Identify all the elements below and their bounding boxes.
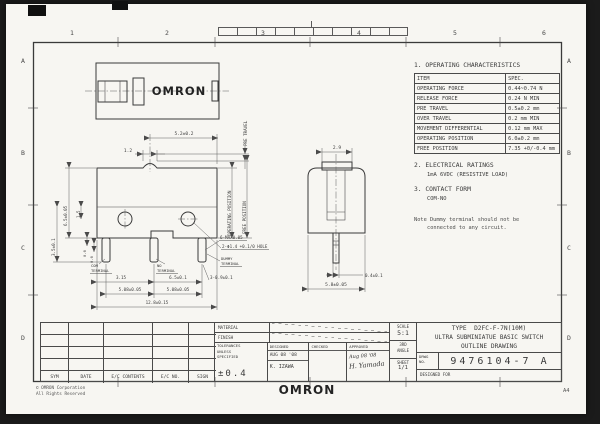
finish-row: FINISH <box>215 333 389 343</box>
approved-signature: H. Yamada <box>347 357 390 373</box>
zone-row-d-right: D <box>567 334 571 342</box>
ruler-center-tick <box>311 21 312 27</box>
zone-row-a-right: A <box>567 57 571 65</box>
zone-col-1: 1 <box>70 29 74 37</box>
dim-terminal-width: 3-0.9±0.1 <box>210 275 233 280</box>
binder-mark <box>28 5 46 16</box>
drawing-number: 9476104-7 A <box>439 353 561 369</box>
note-burr: 6-MAX0.05 <box>220 235 243 240</box>
dim-overall-width: 12.8±0.15 <box>146 300 169 305</box>
table-header-row: ITEM SPEC. <box>415 74 559 84</box>
zone-row-d-left: D <box>21 334 25 342</box>
zone-row-b-left: B <box>21 149 25 157</box>
designed-for-label: DESIGNED FOR <box>417 370 561 379</box>
finish-blank-slash <box>270 333 389 342</box>
subtitle-line: ULTRA SUBMINIATUE BASIC SWITCH <box>417 334 561 343</box>
side-view <box>308 154 365 270</box>
rev-header-ecno: E/C NO. <box>153 371 189 383</box>
electrical-ratings-value: 1mA 6VDC (RESISTIVE LOAD) <box>414 172 564 178</box>
table-row: MOVEMENT DIFFERENTIAL 0.12 mm MAX <box>415 124 559 134</box>
table-row: FREE POSITION 7.35 +0/-0.4 mm <box>415 144 559 153</box>
dim-side-button: 2.9 <box>333 145 341 151</box>
scale-cell: SCALE 5:1 <box>390 323 416 341</box>
note-hole: 2-Φ1.4 +0.1/0 HOLE <box>222 244 268 249</box>
zone-row-a-left: A <box>21 57 25 65</box>
omron-logo-footer: OMRON <box>252 383 362 397</box>
svg-text:TERMINAL: TERMINAL <box>221 261 240 266</box>
dummy-terminal-note: Note Dummy terminal should not be connec… <box>414 217 564 233</box>
dim-terminal-offset-1: 0.6 <box>82 249 87 257</box>
drawing-kind-line: OUTLINE DRAWING <box>417 343 561 353</box>
checked-cell: CHECKED <box>309 343 347 381</box>
zone-row-b-right: B <box>567 149 571 157</box>
contact-form-title: 3. CONTACT FORM <box>414 186 564 193</box>
dim-no-offset: 6.5±0.1 <box>169 275 187 280</box>
rev-header-sign: SIGN <box>189 371 216 383</box>
type-line: TYPE D2FC-F-7N(10M) <box>417 323 561 334</box>
revision-table: SYM DATE E/C CONTENTS E/C NO. SIGN <box>40 322 215 382</box>
binder-mark <box>112 1 128 10</box>
drawing-number-row: DRWG NO. 9476104-7 A <box>417 353 561 370</box>
approval-block: MATERIAL FINISH TOLERANCES UNLESS SPECIF… <box>215 322 390 382</box>
copyright-notice: © OMRON Corporation All Rights Reserved <box>36 386 85 398</box>
label-operating-position: OPERATING POSITION <box>227 190 232 236</box>
characteristics-title: 1. OPERATING CHARACTERISTICS <box>414 62 564 69</box>
dim-button-position: 5.2±0.2 <box>175 131 194 137</box>
dim-pitch-2: 5.08±0.05 <box>167 287 190 292</box>
zone-col-2: 2 <box>165 29 169 37</box>
dim-side-depth: 5.8±0.05 <box>325 282 347 288</box>
zone-col-6: 6 <box>542 29 546 37</box>
rev-header-sym: SYM <box>41 371 69 383</box>
characteristics-table: ITEM SPEC. OPERATING FORCE 0.44~0.74 N R… <box>414 73 560 154</box>
table-row: OPERATING POSITION 6.0±0.2 mm <box>415 134 559 144</box>
tolerance-value: ±0.4 <box>218 369 248 379</box>
side-view-dimensions: 2.9 0.4±0.1 5.8±0.05 <box>308 145 383 292</box>
title-block: SCALE 5:1 3RD ANGLE SHEET 1/1 TYPE D2FC-… <box>390 322 562 382</box>
svg-text:TERMINAL: TERMINAL <box>157 268 176 273</box>
scanned-drawing-sheet: { "zones": {"cols": ["1","2","3","4","5"… <box>0 0 600 424</box>
dim-step-height: 1.5 <box>76 210 81 218</box>
contact-form-value: COM-NO <box>414 196 564 202</box>
dim-button-width: 1.2 <box>124 148 132 154</box>
electrical-ratings-title: 2. ELECTRICAL RATINGS <box>414 162 564 169</box>
rev-header-contents: E/C CONTENTS <box>104 371 153 383</box>
dim-body-height: 6.5±0.05 <box>63 205 68 226</box>
projection-cell: 3RD ANGLE <box>390 341 416 359</box>
table-row: OVER TRAVEL 0.2 mm MIN <box>415 114 559 124</box>
front-view-dimensions: 1.2 5.2±0.2 PRE TRAVEL OPERATING POSITIO… <box>51 120 269 310</box>
scale-ruler <box>218 27 408 36</box>
dim-side-terminal: 0.4±0.1 <box>365 273 383 278</box>
label-free-position: FREE POSITION <box>242 201 247 234</box>
designed-cell: DESIGNED AUG 08 '08 K. IZAWA <box>268 343 310 381</box>
tolerance-cell: TOLERANCES UNLESS SPECIFIED ±0.4 <box>215 343 268 381</box>
zone-row-c-right: C <box>567 244 571 252</box>
sheet-size-label: A4 <box>563 388 570 394</box>
svg-text:TERMINAL: TERMINAL <box>91 268 110 273</box>
sheet-cell: SHEET 1/1 <box>390 359 416 381</box>
specs-column: 1. OPERATING CHARACTERISTICS ITEM SPEC. … <box>414 62 564 233</box>
dim-terminal-offset-2: 0.6 <box>89 255 94 263</box>
dim-pitch-1: 5.08±0.05 <box>119 287 142 292</box>
material-row: MATERIAL <box>215 323 389 333</box>
omron-logo-top-view: OMRON <box>152 84 206 98</box>
table-row: PRE TRAVEL 0.5±0.2 mm <box>415 104 559 114</box>
label-pre-travel: PRE TRAVEL <box>243 120 248 146</box>
zone-col-5: 5 <box>453 29 457 37</box>
drwg-no-label: DRWG NO. <box>417 353 439 369</box>
approved-cell: APPROVED Aug 08 '08 H. Yamada <box>347 343 389 381</box>
material-blank-slash <box>270 323 389 332</box>
dim-com-offset: 3.15 <box>116 275 127 280</box>
rev-header-date: DATE <box>69 371 104 383</box>
zone-row-c-left: C <box>21 244 25 252</box>
table-row: OPERATING FORCE 0.44~0.74 N <box>415 84 559 94</box>
dim-terminal-length: 3.5±0.1 <box>51 238 56 256</box>
table-row: RELEASE FORCE 0.24 N MIN <box>415 94 559 104</box>
top-view: OMRON <box>85 63 229 119</box>
